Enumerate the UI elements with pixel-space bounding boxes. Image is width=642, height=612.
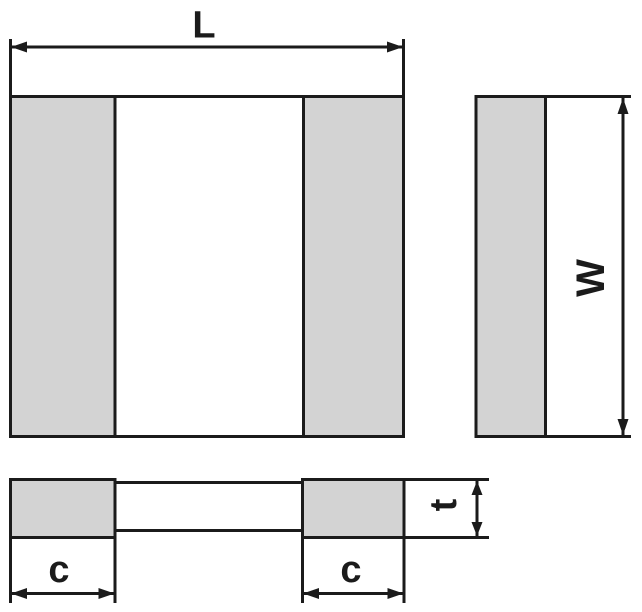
svg-text:t: t [423,498,465,511]
svg-text:W: W [569,259,613,297]
svg-text:c: c [340,549,361,591]
svg-text:L: L [192,5,215,47]
svg-text:c: c [48,549,69,591]
